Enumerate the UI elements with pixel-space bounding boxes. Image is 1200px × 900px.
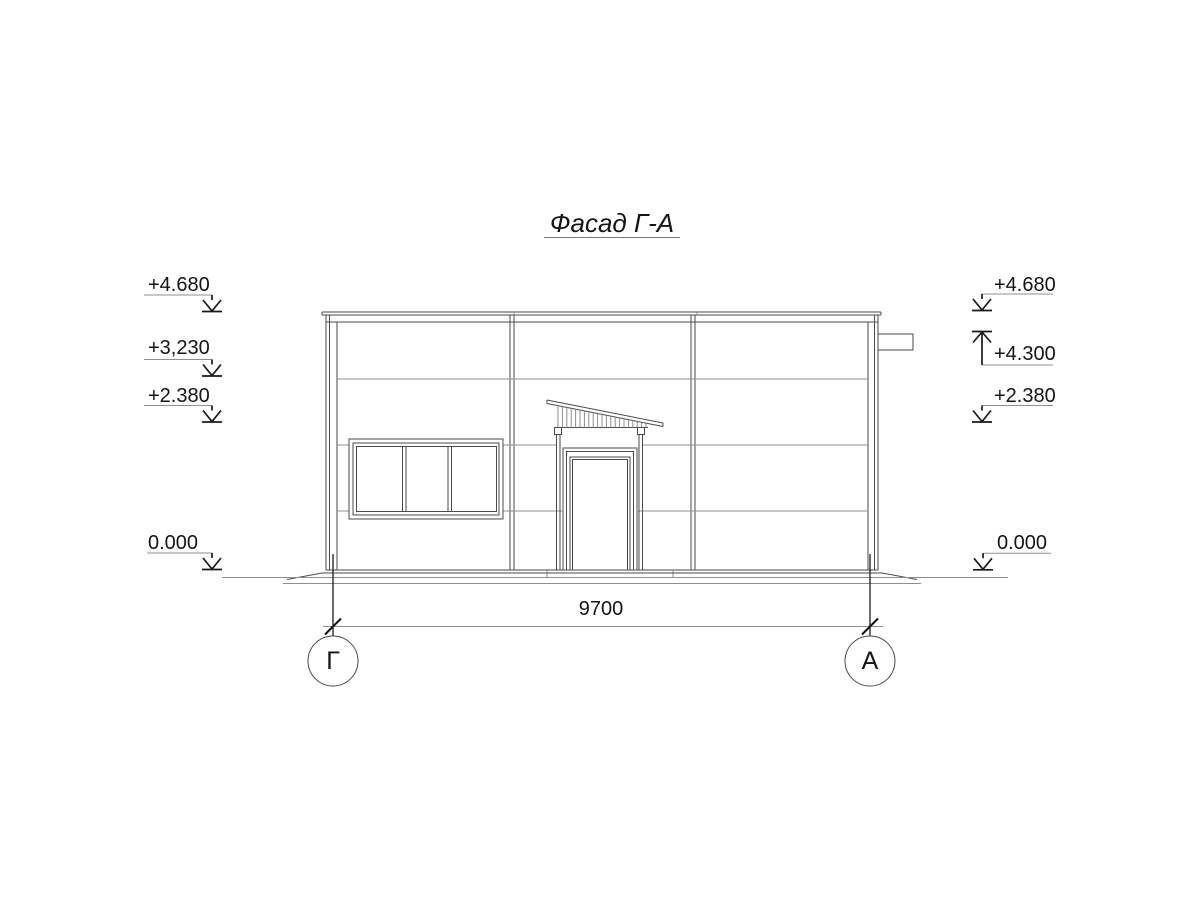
wall-left (326, 315, 337, 570)
level-label-right-2: +4.300 (994, 345, 1056, 363)
axis-bubble-left-label: Г (308, 636, 358, 686)
level-label-left-4: 0.000 (148, 534, 198, 552)
wall-right (868, 315, 878, 570)
columns (510, 315, 695, 570)
parapet (322, 312, 881, 322)
level-label-right-3: +2.380 (994, 387, 1056, 405)
level-label-right-4: 0.000 (997, 534, 1047, 552)
panel-joints (337, 379, 868, 511)
level-label-right-1: +4.680 (994, 276, 1056, 294)
window (349, 439, 503, 519)
scupper (879, 334, 914, 350)
level-label-left-2: +3,230 (148, 339, 210, 357)
axis-bubbles (308, 636, 895, 686)
canopy (547, 400, 663, 570)
entrance-door (563, 448, 637, 570)
axis-bubble-right-label: А (845, 636, 895, 686)
facade-drawing-sheet: Фасад Г-А +4.680 +3,230 +2.380 0.000 +4.… (0, 0, 1200, 900)
level-label-left-1: +4.680 (148, 276, 210, 294)
dimension-label: 9700 (571, 598, 631, 621)
axis-lines (333, 554, 870, 636)
base-ground (222, 570, 1008, 584)
drawing-title: Фасад Г-А (544, 211, 680, 238)
facade-linework (0, 0, 1200, 900)
level-label-left-3: +2.380 (148, 387, 210, 405)
level-marks-right (972, 294, 1053, 570)
